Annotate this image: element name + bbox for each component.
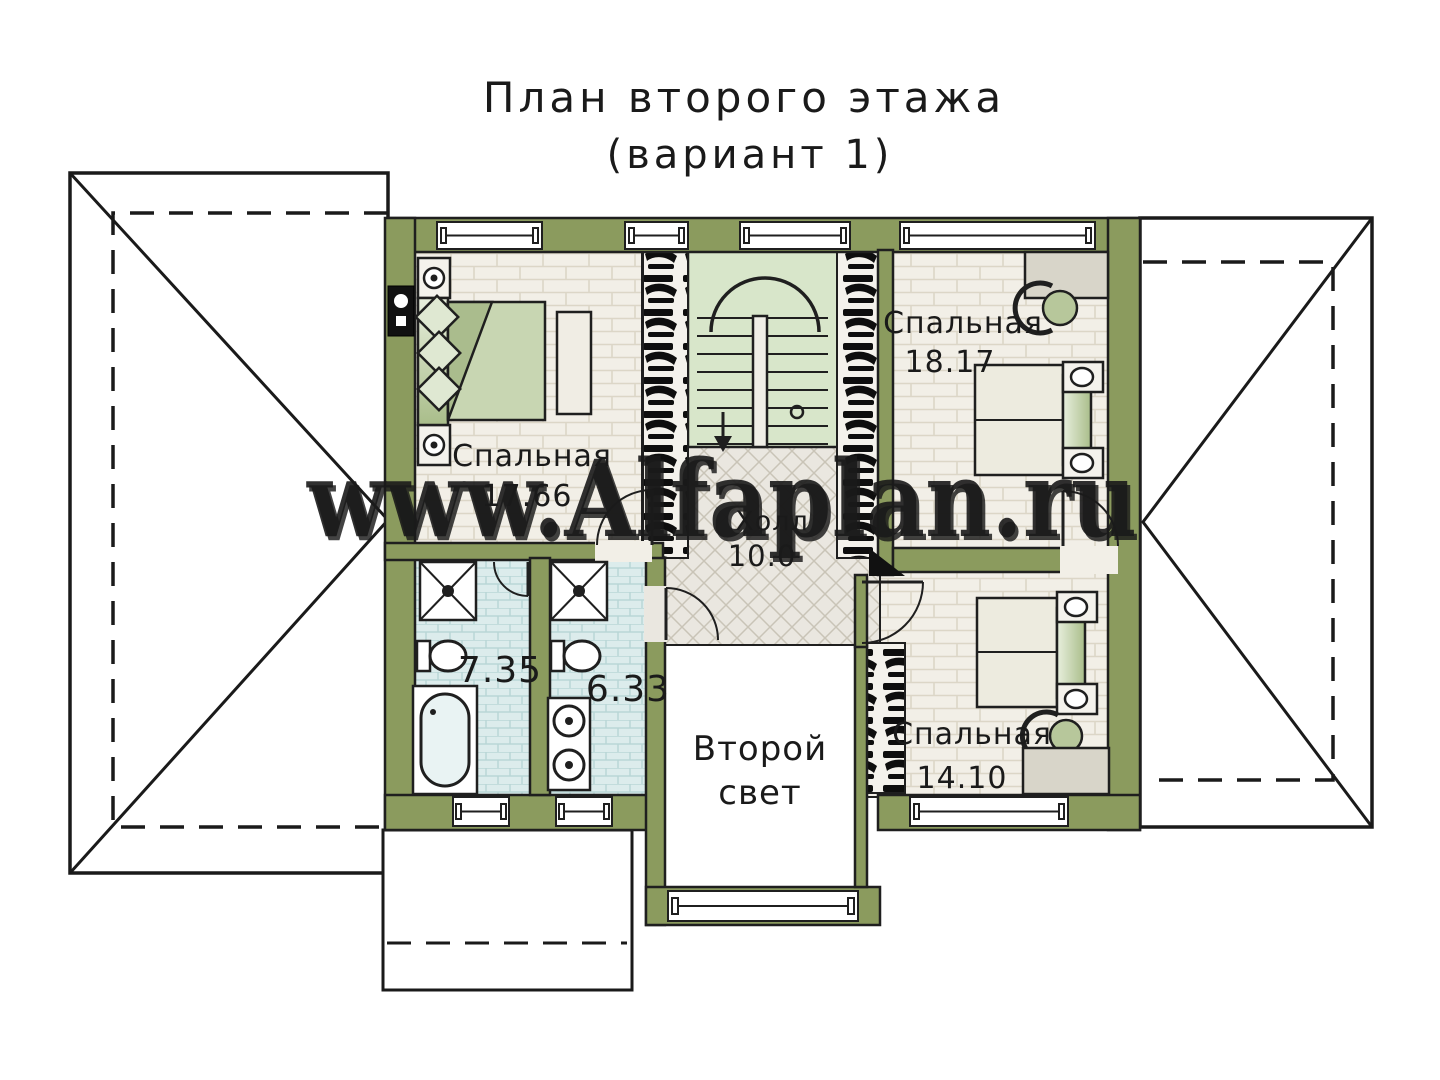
window-bathroom-2: [556, 797, 612, 826]
watermark: www.Alfaplan.ru www.Alfaplan.ru: [306, 436, 1140, 565]
plan-title-line1: План второго этажа: [483, 73, 1005, 122]
roof-porch: [383, 830, 632, 990]
wall-hall-southeast: [855, 575, 867, 647]
bedroom-3-label: Спальная: [892, 717, 1052, 752]
door-gap-bathroom-2: [644, 586, 667, 642]
bedroom-3-area: 14.10: [917, 761, 1008, 796]
staircase: [688, 250, 839, 452]
second-light-label-line2: свет: [718, 773, 801, 813]
window-bedroom-3: [910, 797, 1068, 826]
svg-text:www.Alfaplan.ru: www.Alfaplan.ru: [309, 440, 1140, 565]
lamp-icon: [1065, 690, 1087, 708]
lamp-icon: [1065, 598, 1087, 616]
wall-tv-unit: [388, 286, 414, 336]
window-second-light: [668, 891, 858, 921]
floor-plan-page: План второго этажа (вариант 1) Холл 10.0: [0, 0, 1440, 1080]
wall-bottom-left: [385, 795, 663, 830]
bedroom-2-label: Спальная: [883, 306, 1043, 341]
window-stairwell: [740, 222, 850, 249]
bedroom-2-area: 18.17: [905, 345, 996, 380]
bathroom-2-area: 6.33: [586, 669, 670, 710]
pillows: [416, 296, 460, 410]
double-sink-vanity: [548, 698, 590, 790]
wall-secondlight-east: [855, 645, 867, 887]
shower-stall: [551, 562, 607, 620]
second-light-label-line1: Второй: [693, 729, 827, 769]
lamp-icon: [1071, 368, 1093, 386]
desk: [1023, 748, 1109, 794]
roof-right: [1140, 218, 1372, 827]
toilet: [551, 641, 600, 671]
window-bedroom-2: [900, 222, 1095, 249]
bathroom-1-area: 7.35: [458, 650, 542, 691]
window-bedroom-1: [437, 222, 542, 249]
window-closet-left: [625, 222, 688, 249]
bathtub: [413, 686, 477, 794]
window-bathroom-1: [453, 797, 509, 826]
shower-stall: [420, 562, 476, 620]
plan-title-line2: (вариант 1): [607, 132, 894, 178]
floor-plan-drawing: План второго этажа (вариант 1) Холл 10.0: [0, 0, 1440, 1080]
dresser: [557, 312, 591, 414]
